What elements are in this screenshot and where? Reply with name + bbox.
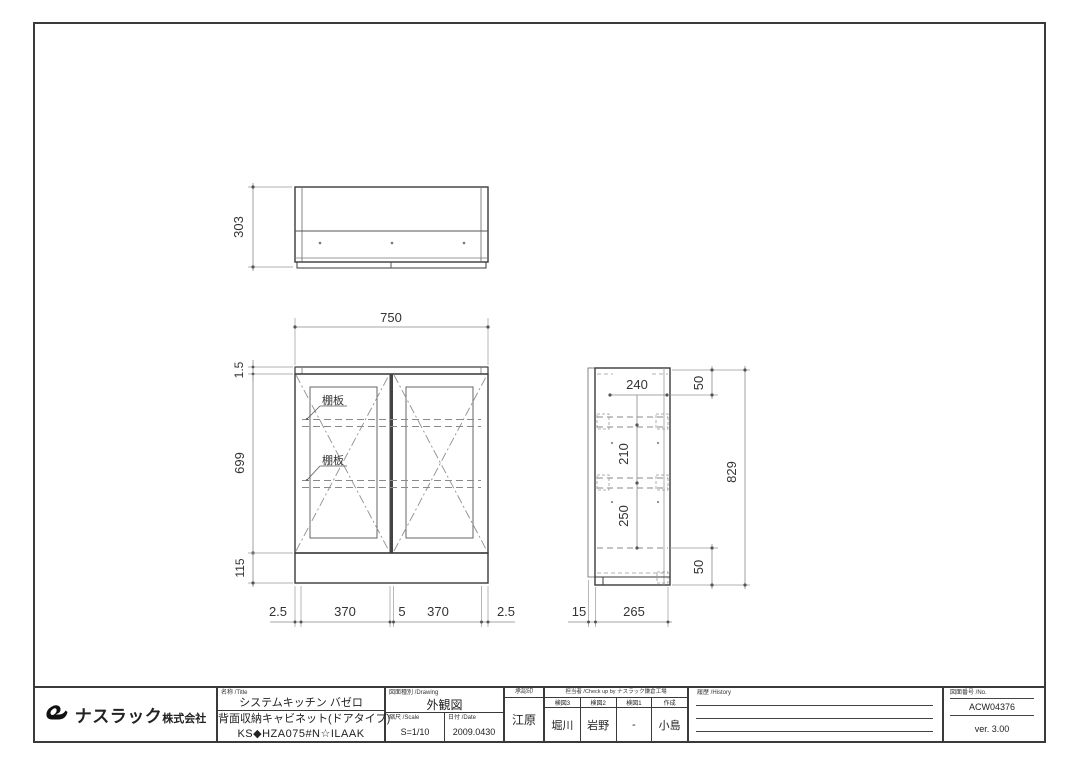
side-view: 240 210 250 50: [568, 366, 750, 627]
side-bottom-dims: 15 265: [568, 580, 672, 627]
dim-label-50-bottom: 50: [691, 560, 706, 574]
dim-label-50-top: 50: [691, 376, 706, 390]
company-logo-cell: ナスラック株式会社: [35, 688, 218, 741]
product-code: KS◆HZA075#N☆ILAAK: [218, 727, 384, 741]
shelf-label-text: 棚板: [322, 453, 344, 467]
dim-label-829: 829: [724, 461, 739, 483]
company-name-suffix: 株式会社: [162, 713, 206, 725]
dim-label-303: 303: [231, 216, 246, 238]
dim-label-1-5: 1.5: [232, 361, 246, 378]
drawing-number-cell: 図面番号 /No. ACW04376 ver. 3.00: [944, 688, 1040, 741]
number-label: 図面番号 /No.: [950, 688, 1034, 698]
approval-cell: 承認印 江原: [505, 688, 545, 741]
drawing-type-value: 外観図: [386, 696, 503, 713]
dim-label-5: 5: [398, 604, 405, 619]
base-panel: [295, 553, 488, 583]
approval-name: 江原: [505, 698, 543, 741]
shelf-label-text: 棚板: [322, 393, 344, 407]
checker-name-3: 堀川: [545, 708, 581, 741]
drawing-type-cell: 図面種別 /Drawing 外観図 縮尺 /Scale S=1/10 日付 /D…: [386, 688, 505, 741]
title-block: ナスラック株式会社 名称 /Title システムキッチン バゼロ 背面収納キャビ…: [33, 686, 1046, 743]
cad-drawing-canvas: 303 750: [0, 0, 1080, 763]
center-stile: [390, 374, 394, 553]
dim-label-370-right: 370: [427, 604, 449, 619]
history-row-line: [696, 705, 933, 706]
history-row-line: [696, 718, 933, 719]
dim-base-115: 115: [233, 553, 293, 587]
dim-body-699: 699: [232, 374, 255, 555]
date-cell: 日付 /Date 2009.0430: [445, 713, 503, 741]
top-view: 303: [231, 183, 488, 271]
history-cell: 履歴 /History: [689, 688, 944, 741]
side-shelf-2: [597, 475, 668, 490]
product-description: 背面収納キャビネット(ドアタイプ): [218, 711, 384, 727]
dim-depth-303: 303: [231, 183, 293, 271]
dim-label-210: 210: [616, 443, 631, 465]
dim-label-240: 240: [626, 377, 648, 392]
drawing-number: ACW04376: [950, 699, 1034, 715]
dim-label-2-5-right: 2.5: [497, 604, 515, 619]
product-series: システムキッチン バゼロ: [218, 697, 384, 711]
dim-width-750: 750: [293, 310, 489, 365]
dim-inner-depth-240: 240: [608, 377, 668, 397]
dim-label-15: 15: [572, 604, 586, 619]
drawing-sheet: 303 750: [0, 0, 1080, 763]
name-label: 名称 /Title: [218, 688, 384, 697]
scale-value: S=1/10: [386, 727, 444, 737]
history-row-line: [696, 731, 933, 732]
shelf-label-2: 棚板: [306, 453, 347, 481]
checkup-label: 担当者 /Check up by ナスラック鎌倉工場: [545, 688, 687, 698]
side-right-dims: 50 50 829: [670, 366, 750, 589]
drawing-title-cell: 名称 /Title システムキッチン バゼロ 背面収納キャビネット(ドアタイプ)…: [218, 688, 386, 741]
creator-name: 小島: [652, 708, 687, 741]
scale-label: 縮尺 /Scale: [389, 714, 419, 722]
checker-name-2: 岩野: [581, 708, 617, 741]
back-panel: [588, 368, 595, 577]
check-cell: 担当者 /Check up by ナスラック鎌倉工場 検図3 検図2 検図1 作…: [545, 688, 689, 741]
dim-label-250: 250: [616, 505, 631, 527]
approval-label: 承認印: [505, 688, 543, 698]
dim-label-699: 699: [232, 452, 247, 474]
scale-cell: 縮尺 /Scale S=1/10: [386, 713, 445, 741]
dim-label-265: 265: [623, 604, 645, 619]
date-value: 2009.0430: [445, 727, 503, 737]
company-name: ナスラック株式会社: [75, 702, 207, 727]
drawing-version: ver. 3.00: [950, 716, 1034, 741]
check-col-label-1: 検図1: [617, 698, 653, 707]
dim-label-750: 750: [380, 310, 402, 325]
side-shelf-1: [597, 414, 668, 429]
dim-label-2-5-left: 2.5: [269, 604, 287, 619]
front-view: 750: [232, 310, 515, 627]
front-bottom-dims: 2.5 370 5 370 2.5: [269, 586, 515, 627]
history-label: 履歴 /History: [697, 689, 731, 697]
check-col-label-2: 検図2: [581, 698, 617, 707]
dim-top-edge-1-5: 1.5: [232, 360, 293, 381]
company-name-main: ナスラック: [75, 707, 163, 726]
date-label: 日付 /Date: [448, 714, 476, 722]
nasluck-swan-logo-icon: [45, 704, 69, 725]
check-col-label-create: 作成: [652, 698, 687, 707]
dim-label-370-left: 370: [334, 604, 356, 619]
dim-label-115: 115: [233, 558, 247, 577]
dim-shelf-pitches: 210 250: [616, 395, 639, 550]
check-col-label-3: 検図3: [545, 698, 581, 707]
right-door-panel: [406, 387, 473, 538]
checker-name-1: -: [617, 708, 653, 741]
